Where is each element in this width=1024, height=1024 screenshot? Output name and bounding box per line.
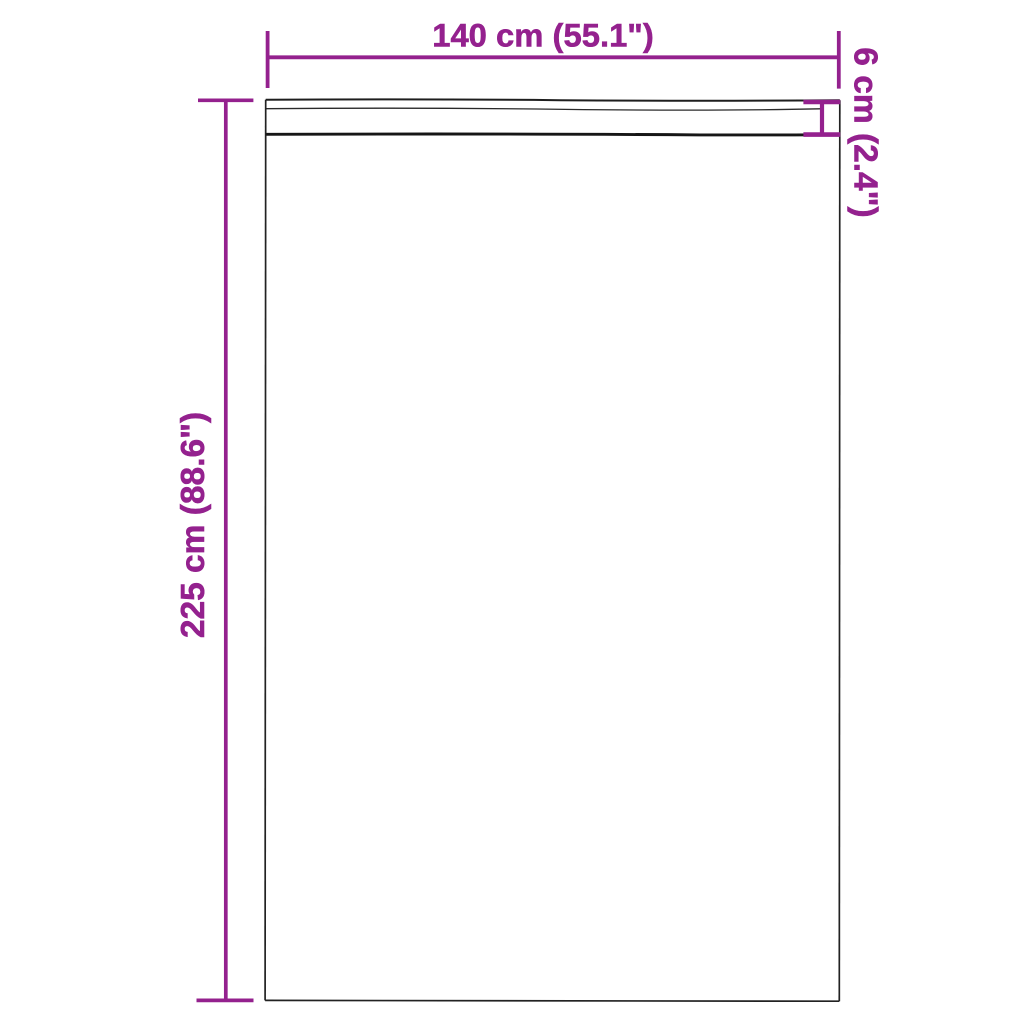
svg-text:225 cm (88.6"): 225 cm (88.6") [175,412,212,638]
svg-text:140 cm (55.1"): 140 cm (55.1") [432,17,654,54]
svg-text:6 cm (2.4"): 6 cm (2.4") [847,47,884,217]
